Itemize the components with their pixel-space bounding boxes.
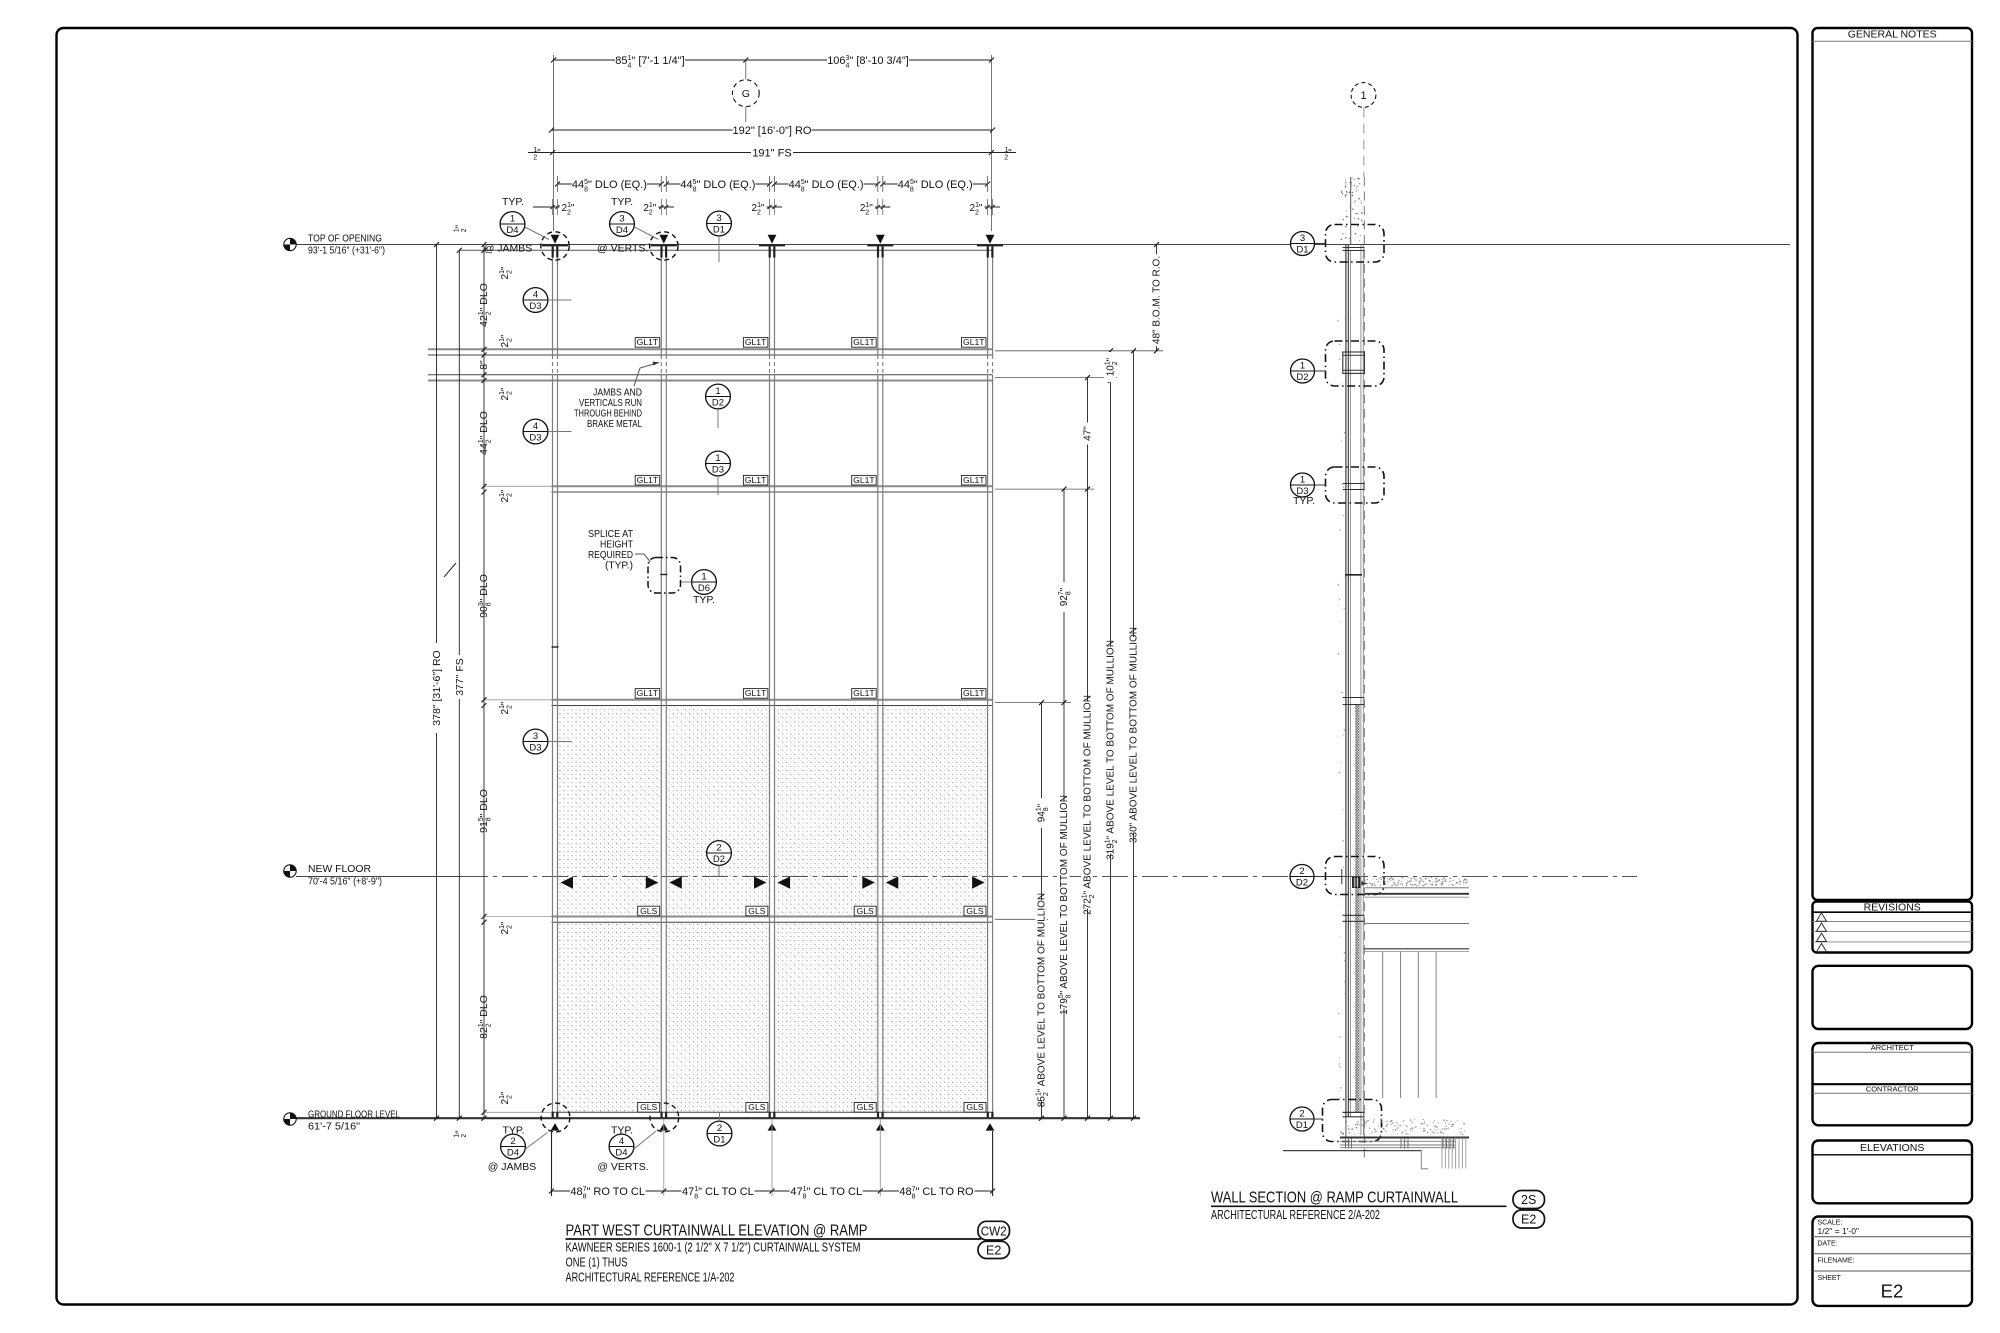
svg-text:NEW FLOOR: NEW FLOOR	[308, 863, 371, 875]
svg-text:TYP.: TYP.	[611, 196, 633, 208]
svg-text:D1: D1	[713, 1135, 725, 1146]
svg-text:GLS: GLS	[966, 906, 983, 916]
svg-text:ARCHITECTURAL REFERENCE 2/A-20: ARCHITECTURAL REFERENCE 2/A-202	[1211, 1208, 1380, 1222]
svg-text:GL1T: GL1T	[637, 688, 659, 698]
svg-text:GL1T: GL1T	[637, 475, 659, 485]
svg-text:GL1T: GL1T	[853, 688, 875, 698]
svg-text:GL1T: GL1T	[637, 337, 659, 347]
svg-text:1: 1	[1300, 360, 1305, 371]
svg-text:4: 4	[533, 289, 538, 300]
svg-text:G: G	[742, 88, 750, 100]
svg-text:@ VERTS.: @ VERTS.	[597, 1161, 648, 1173]
svg-text:GL1T: GL1T	[745, 337, 767, 347]
svg-text:2: 2	[1299, 866, 1304, 877]
svg-text:E2: E2	[1881, 1281, 1904, 1302]
svg-text:D2: D2	[713, 854, 725, 865]
svg-text:D4: D4	[507, 1148, 519, 1159]
svg-text:GLS: GLS	[857, 906, 874, 916]
svg-text:SHEET: SHEET	[1818, 1275, 1842, 1282]
svg-text:1: 1	[701, 571, 706, 582]
svg-text:GROUND FLOOR LEVEL: GROUND FLOOR LEVEL	[308, 1109, 400, 1121]
svg-text:D6: D6	[698, 583, 710, 594]
svg-text:93'-1 5/16" (+31'-6"): 93'-1 5/16" (+31'-6")	[308, 245, 385, 257]
svg-text:D1: D1	[1296, 245, 1308, 256]
svg-text:GENERAL NOTES: GENERAL NOTES	[1848, 29, 1937, 41]
svg-text:ARCHITECT: ARCHITECT	[1871, 1043, 1914, 1052]
svg-text:GL1T: GL1T	[963, 337, 985, 347]
svg-text:61'-7 5/16": 61'-7 5/16"	[308, 1121, 360, 1133]
svg-text:GLS: GLS	[748, 906, 765, 916]
svg-text:ARCHITECTURAL REFERENCE 1/A-20: ARCHITECTURAL REFERENCE 1/A-202	[566, 1270, 735, 1284]
svg-text:47": 47"	[1083, 426, 1094, 441]
svg-text:E2: E2	[986, 1243, 1001, 1257]
svg-text:TYP.: TYP.	[1293, 495, 1315, 507]
svg-text:@ JAMBS: @ JAMBS	[484, 243, 533, 255]
svg-text:(TYP.): (TYP.)	[605, 560, 633, 572]
svg-text:@ JAMBS: @ JAMBS	[488, 1161, 537, 1173]
svg-text:D4: D4	[616, 225, 628, 236]
svg-text:48" B.O.M. TO R.O.: 48" B.O.M. TO R.O.	[1152, 256, 1163, 344]
svg-text:DATE:: DATE:	[1818, 1241, 1838, 1248]
svg-text:2: 2	[717, 1123, 722, 1134]
svg-text:FILENAME:: FILENAME:	[1818, 1258, 1855, 1265]
svg-text:D1: D1	[1296, 1120, 1308, 1131]
svg-text:GL1T: GL1T	[853, 475, 875, 485]
svg-text:D3: D3	[529, 433, 541, 444]
svg-text:8": 8"	[478, 360, 490, 370]
svg-text:2S: 2S	[1521, 1193, 1536, 1207]
svg-text:GL1T: GL1T	[745, 688, 767, 698]
svg-text:GLS: GLS	[748, 1102, 765, 1112]
svg-text:1/2" = 1'-0": 1/2" = 1'-0"	[1818, 1226, 1859, 1236]
svg-text:D3: D3	[529, 301, 541, 312]
svg-text:TYP.: TYP.	[502, 196, 524, 208]
svg-text:1: 1	[510, 213, 515, 224]
svg-text:192" [16'-0"] RO: 192" [16'-0"] RO	[732, 125, 811, 137]
svg-text:4: 4	[619, 1136, 624, 1147]
svg-text:1: 1	[1360, 90, 1366, 102]
svg-text:3: 3	[716, 213, 721, 224]
svg-text:1: 1	[715, 453, 720, 464]
svg-text:TYP.: TYP.	[693, 594, 715, 606]
svg-text:GL1T: GL1T	[745, 475, 767, 485]
svg-text:D2: D2	[712, 398, 724, 409]
svg-text:2: 2	[1299, 1108, 1304, 1119]
svg-text:D3: D3	[529, 743, 541, 754]
svg-text:GLS: GLS	[640, 906, 657, 916]
svg-text:ELEVATIONS: ELEVATIONS	[1860, 1142, 1924, 1154]
svg-text:CONTRACTOR: CONTRACTOR	[1866, 1084, 1919, 1093]
svg-text:D4: D4	[615, 1148, 627, 1159]
svg-text:GLS: GLS	[640, 1102, 657, 1112]
svg-text:ONE (1) THUS: ONE (1) THUS	[566, 1255, 628, 1269]
svg-text:4: 4	[533, 421, 538, 432]
svg-text:BRAKE METAL: BRAKE METAL	[587, 418, 642, 430]
svg-text:TOP OF OPENING: TOP OF OPENING	[308, 233, 382, 245]
svg-text:GLS: GLS	[857, 1102, 874, 1112]
svg-text:D1: D1	[713, 225, 725, 236]
svg-text:377" FS: 377" FS	[454, 658, 466, 696]
svg-text:KAWNEER SERIES 1600-1 (2 1/2": KAWNEER SERIES 1600-1 (2 1/2" X 7 1/2") …	[566, 1240, 861, 1254]
svg-text:GLS: GLS	[966, 1102, 983, 1112]
svg-text:1: 1	[715, 386, 720, 397]
svg-text:D2: D2	[1296, 372, 1308, 383]
svg-text:D2: D2	[1296, 878, 1308, 889]
svg-text:D3: D3	[712, 465, 724, 476]
svg-text:3: 3	[1300, 233, 1305, 244]
svg-text:2: 2	[716, 842, 721, 853]
svg-text:@ VERTS.: @ VERTS.	[597, 243, 648, 255]
svg-text:191" FS: 191" FS	[752, 148, 791, 160]
svg-text:378" [31'-6"] RO: 378" [31'-6"] RO	[431, 650, 443, 725]
svg-text:70'-4 5/16" (+8'-9"): 70'-4 5/16" (+8'-9")	[308, 876, 382, 888]
svg-text:D4: D4	[506, 225, 518, 236]
svg-text:GL1T: GL1T	[963, 475, 985, 485]
svg-text:GL1T: GL1T	[963, 688, 985, 698]
svg-text:2: 2	[510, 1136, 515, 1147]
svg-text:CW2: CW2	[981, 1224, 1007, 1238]
svg-text:WALL SECTION @ RAMP CURTAINWAL: WALL SECTION @ RAMP CURTAINWALL	[1211, 1190, 1458, 1207]
svg-text:3: 3	[619, 213, 624, 224]
svg-text:330" ABOVE LEVEL TO BOTTOM OF: 330" ABOVE LEVEL TO BOTTOM OF MULLION	[1129, 627, 1140, 843]
svg-text:1: 1	[1300, 474, 1305, 485]
svg-text:3: 3	[533, 731, 538, 742]
svg-text:E2: E2	[1521, 1213, 1536, 1227]
svg-text:PART WEST CURTAINWALL ELEVATIO: PART WEST CURTAINWALL ELEVATION @ RAMP	[566, 1223, 868, 1240]
svg-text:GL1T: GL1T	[853, 337, 875, 347]
